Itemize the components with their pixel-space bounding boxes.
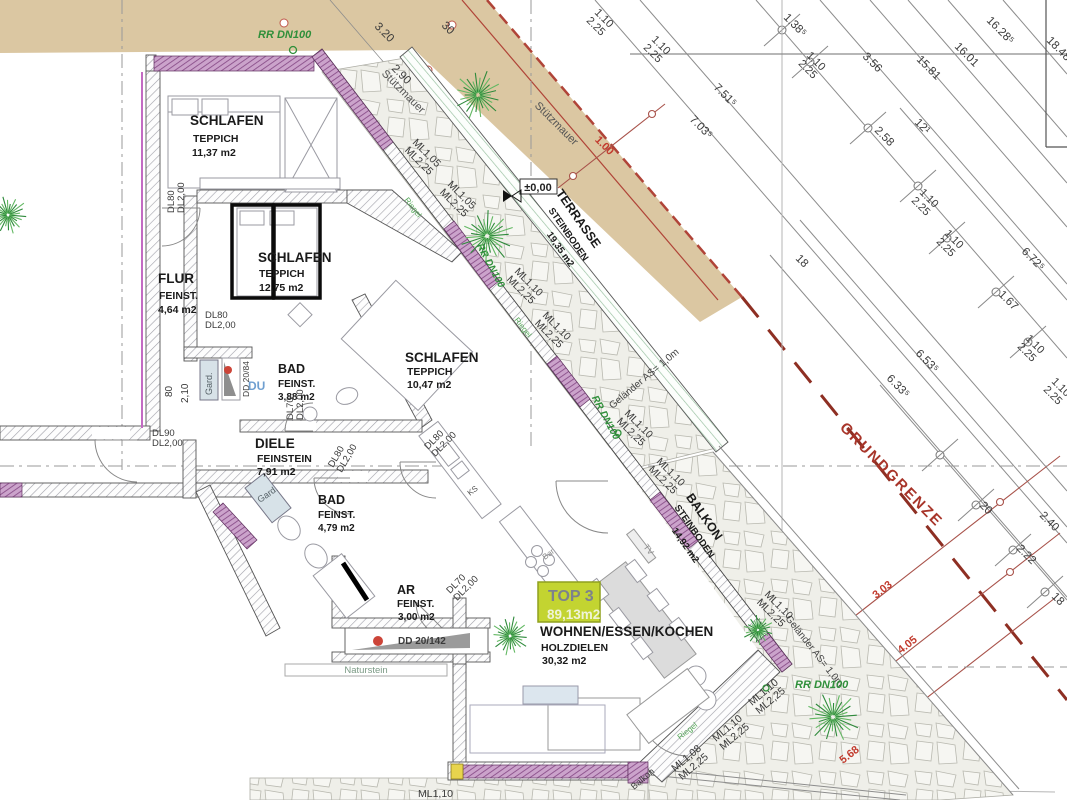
sofa-1 xyxy=(548,698,640,750)
room-schlafen-3: SCHLAFEN xyxy=(405,350,479,365)
annotation-dd-20-142: DD 20/142 xyxy=(398,636,446,647)
dd142-dot xyxy=(373,636,383,646)
room-schlafen-2: SCHLAFEN xyxy=(258,250,332,265)
unit-name: TOP 3 xyxy=(548,588,594,605)
svg-text:FEINST.: FEINST. xyxy=(318,510,355,521)
annotation-80: 80 xyxy=(164,385,175,397)
annotation-du: DU xyxy=(248,379,265,393)
door-gap-3 xyxy=(92,427,130,439)
svg-text:12,75 m2: 12,75 m2 xyxy=(259,282,304,294)
level-label: ±0,00 xyxy=(524,182,551,194)
svg-text:3,00 m2: 3,00 m2 xyxy=(398,612,435,623)
lowboard xyxy=(523,686,578,704)
rr-dn100-label-4: RR DN100 xyxy=(795,679,849,691)
room-schlafen-1: SCHLAFEN xyxy=(190,113,264,128)
annotation-2-10: 2,10 xyxy=(180,383,191,403)
floor-plan-drawing: TOP 3 89,13m2 SCHLAFEN TEPPICH 11,37 m2 … xyxy=(0,0,1067,800)
svg-text:HOLZDIELEN: HOLZDIELEN xyxy=(541,642,608,654)
room-wohnen: WOHNEN/ESSEN/KOCHEN xyxy=(540,624,713,639)
svg-text:4,79 m2: 4,79 m2 xyxy=(318,523,355,534)
floor-plan-page: TOP 3 89,13m2 SCHLAFEN TEPPICH 11,37 m2 … xyxy=(0,0,1067,800)
room-diele: DIELE xyxy=(255,436,295,451)
svg-text:FEINST.: FEINST. xyxy=(397,599,434,610)
svg-text:FEINSTEIN: FEINSTEIN xyxy=(257,453,312,465)
svg-text:FEINST.: FEINST. xyxy=(159,290,198,302)
svg-text:7,91 m2: 7,91 m2 xyxy=(257,466,296,478)
svg-text:FEINST.: FEINST. xyxy=(278,379,315,390)
shower-dot xyxy=(224,366,232,374)
room-bad-2: BAD xyxy=(318,493,345,507)
room-ar: AR xyxy=(397,583,415,597)
unit-area: 89,13m2 xyxy=(547,607,600,622)
naturstein-label: Naturstein xyxy=(344,665,387,676)
door-gap-1 xyxy=(286,421,316,431)
annotation-gard-: Gard. xyxy=(204,372,214,395)
svg-text:TEPPICH: TEPPICH xyxy=(193,133,239,145)
rr-dn100-label-1: RR DN100 xyxy=(258,29,312,41)
svg-text:TEPPICH: TEPPICH xyxy=(407,366,453,378)
svg-text:4,64 m2: 4,64 m2 xyxy=(158,304,197,316)
svg-text:30,32 m2: 30,32 m2 xyxy=(542,655,587,667)
annotation-ml1-10: ML1,10 xyxy=(418,788,453,800)
room-bad-1: BAD xyxy=(278,362,305,376)
room-flur: FLUR xyxy=(158,271,194,286)
cabinet-strip xyxy=(200,178,340,189)
svg-text:TEPPICH: TEPPICH xyxy=(259,268,305,280)
svg-text:11,37 m2: 11,37 m2 xyxy=(192,147,236,159)
svg-text:10,47 m2: 10,47 m2 xyxy=(407,379,452,391)
drain-box-yellow xyxy=(451,764,463,779)
